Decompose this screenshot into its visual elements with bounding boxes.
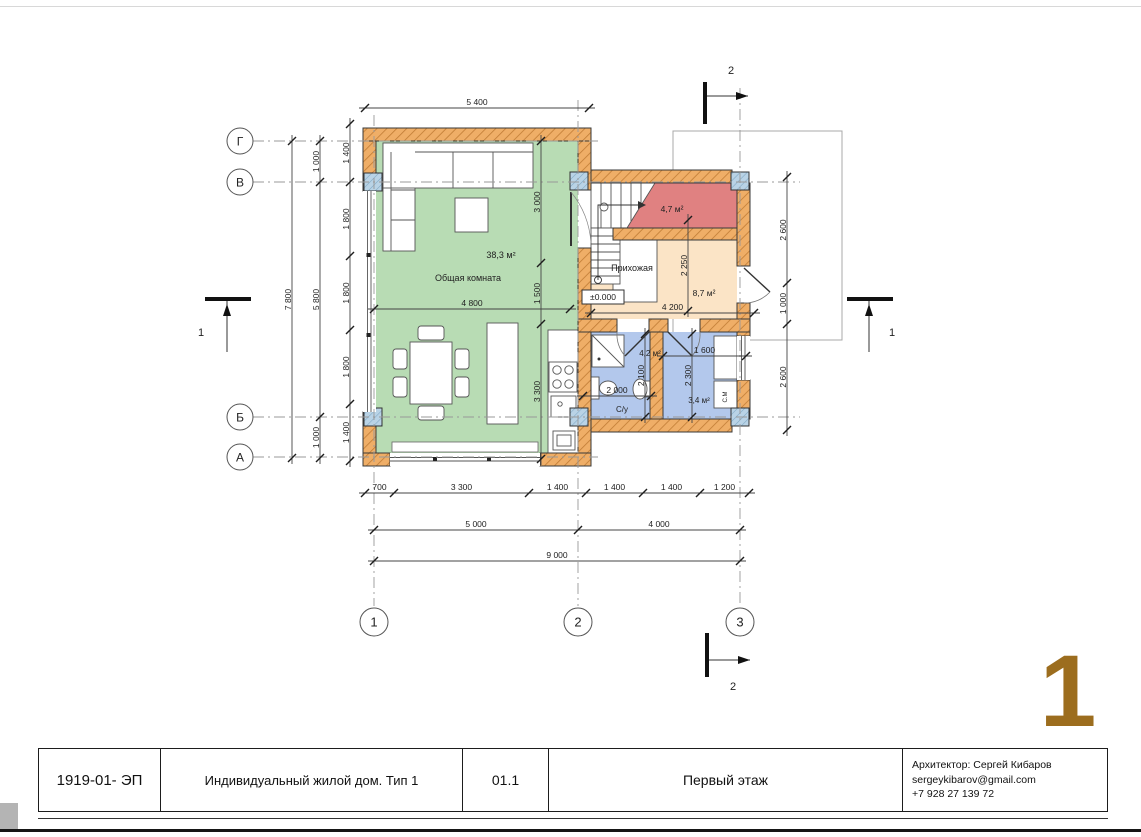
- chair: [393, 349, 407, 369]
- entry-door-leaf: [744, 268, 770, 292]
- title-block: 1919-01- ЭП Индивидуальный жилой дом. Ти…: [38, 748, 1108, 812]
- dimension-label: 2 000: [606, 385, 628, 395]
- dimension-label: 1 400: [341, 422, 351, 444]
- dimension-label: 1 400: [661, 482, 683, 492]
- frame-line: [38, 818, 1108, 819]
- utility-counter: [714, 336, 737, 379]
- dimension-label: 1 800: [341, 356, 351, 378]
- axis-label: 3: [736, 615, 743, 630]
- dimension: 1 0005 8001 000: [311, 135, 324, 464]
- plan-label: 8,7 м²: [693, 288, 716, 298]
- dimension-label: 700: [372, 482, 386, 492]
- architect-email: sergeykibarov@gmail.com: [912, 773, 1036, 788]
- dimension-label: 2 100: [636, 365, 646, 387]
- axis-bubble: Б: [227, 404, 253, 430]
- plan-label: 38,3 м²: [486, 250, 515, 260]
- axis-label: Г: [237, 134, 244, 148]
- kitchen-cabinet: [553, 431, 575, 450]
- dimension-label: 2 600: [778, 366, 788, 388]
- plan-label: 2: [730, 681, 736, 693]
- dimension-label: 3 300: [451, 482, 473, 492]
- plan-label: С/у: [616, 405, 628, 414]
- titleblock-project-name: Индивидуальный жилой дом. Тип 1: [161, 749, 463, 811]
- dimension-label: 9 000: [546, 550, 568, 560]
- window-sill-cabinet: [392, 442, 538, 452]
- plan-label: 3,4 м²: [688, 396, 710, 405]
- column: [570, 172, 588, 190]
- kitchen-counter: [548, 330, 578, 453]
- dimension: 2 6001 0002 600: [778, 171, 791, 436]
- titleblock-sheet-code: 01.1: [463, 749, 549, 811]
- axis-label: А: [236, 450, 244, 464]
- kitchen-island: [487, 323, 518, 424]
- dimension-label: 1 200: [714, 482, 736, 492]
- dimension-label: 1 800: [341, 282, 351, 304]
- plan-label: Прихожая: [611, 263, 653, 273]
- corner-watermark: [0, 803, 18, 829]
- titleblock-doc-code: 1919-01- ЭП: [39, 749, 161, 811]
- dimension-label: 4 200: [662, 302, 684, 312]
- axis-label: Б: [236, 410, 244, 424]
- chair: [393, 377, 407, 397]
- dimension-label: 5 400: [466, 97, 488, 107]
- axis-bubble: А: [227, 444, 253, 470]
- dimension-label: 4 000: [648, 519, 670, 529]
- titleblock-sheet-title: Первый этаж: [549, 749, 903, 811]
- axis-bubble: В: [227, 169, 253, 195]
- dimension: 7 800: [283, 135, 296, 464]
- axis-bubble: 1: [360, 608, 388, 636]
- plan-label: 1: [198, 327, 204, 339]
- dimension-label: 4 800: [461, 298, 483, 308]
- section-1-right-marker: [847, 297, 893, 301]
- sheet-bottom-edge: [0, 829, 1141, 832]
- dimension-label: 5 800: [311, 289, 321, 311]
- dimension-label: 1 400: [547, 482, 569, 492]
- sheet-top-edge: [0, 6, 1141, 7]
- axis-label: 2: [574, 615, 581, 630]
- stair-post-symbol: [600, 203, 608, 211]
- dimension-label: 3 300: [532, 381, 542, 403]
- dimension-label: 1 400: [341, 142, 351, 164]
- sheet-number: 1: [1016, 640, 1120, 742]
- axis-bubble: Г: [227, 128, 253, 154]
- chair: [455, 377, 469, 397]
- dimension: 1 4001 8001 8001 8001 400: [341, 118, 354, 467]
- plan-label: 4,2 м²: [639, 349, 661, 358]
- section-2-top-marker: [703, 82, 707, 124]
- floor-plan-svg: 5 4007003 3001 4001 4001 4001 2005 0004 …: [0, 0, 1141, 745]
- dimension-label: 1 000: [311, 427, 321, 449]
- dimension-label: 1 800: [341, 208, 351, 230]
- dimension-label: 3 000: [532, 191, 542, 213]
- axis-label: В: [236, 175, 244, 189]
- dining-table: [410, 342, 452, 404]
- plan-label: 4,7 м²: [661, 204, 684, 214]
- dimension-label: 7 800: [283, 289, 293, 311]
- architect-name: Архитектор: Сергей Кибаров: [912, 758, 1052, 773]
- axis-label: 1: [370, 615, 377, 630]
- dimension: 9 000: [368, 550, 746, 565]
- dimension-label: 1 000: [778, 293, 788, 315]
- dimension-label: 1 400: [604, 482, 626, 492]
- side-table: [455, 198, 488, 232]
- dimension-label: 1 600: [694, 345, 716, 355]
- plan-label: С.М: [723, 392, 729, 403]
- plan-label: 1: [889, 327, 895, 339]
- dimension-label: 2 250: [679, 255, 689, 277]
- plan-label: Общая комната: [435, 273, 501, 283]
- chair: [418, 326, 444, 340]
- plan-label: ±0.000: [590, 292, 616, 302]
- drawing-sheet: 5 4007003 3001 4001 4001 4001 2005 0004 …: [0, 0, 1141, 837]
- dimension-label: 2 600: [778, 219, 788, 241]
- dimension-label: 2 300: [683, 365, 693, 387]
- chair: [418, 406, 444, 420]
- cooktop: [549, 362, 577, 392]
- titleblock-architect-info: Архитектор: Сергей Кибаров sergeykibarov…: [903, 749, 1107, 811]
- chair: [455, 349, 469, 369]
- dimension-label: 1 000: [311, 151, 321, 173]
- plan-label: 2: [728, 65, 734, 77]
- dimension-label: 1 500: [532, 283, 542, 305]
- axis-bubble: 3: [726, 608, 754, 636]
- axis-bubble: 2: [564, 608, 592, 636]
- dimension: 7003 3001 4001 4001 4001 200: [359, 482, 755, 497]
- dimension-label: 5 000: [465, 519, 487, 529]
- section-1-left-marker: [205, 297, 251, 301]
- dimension: 5 0004 000: [368, 519, 746, 534]
- architect-phone: +7 928 27 139 72: [912, 787, 994, 802]
- section-2-bottom-marker: [705, 633, 709, 677]
- dimension: 5 400: [359, 97, 595, 112]
